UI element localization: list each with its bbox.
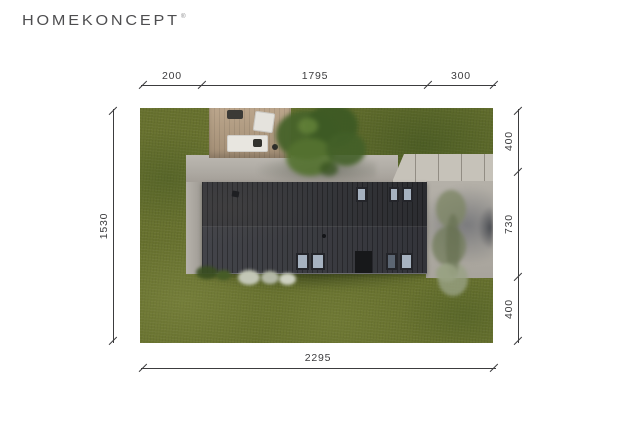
dimension-value: 400 (503, 289, 515, 329)
dimension-value: 400 (503, 121, 515, 161)
tree-canopy (268, 108, 372, 182)
dimension-line (518, 109, 519, 343)
dimension-value: 2295 (293, 352, 343, 364)
roof-window (386, 253, 397, 270)
slab-driveway-band (392, 154, 493, 182)
roof-window (356, 187, 367, 202)
canopy-blob (326, 132, 366, 166)
shrub (196, 266, 218, 279)
site-plan-page: HOMEKONCEPT ® (0, 0, 634, 448)
white-shrub (238, 270, 260, 285)
roof-window (402, 187, 413, 202)
sparse-tree (428, 186, 476, 304)
white-shrub (261, 271, 279, 284)
dimension-value: 1795 (290, 70, 340, 82)
dimension-value: 200 (152, 70, 192, 82)
roof-vent (322, 234, 326, 238)
roof-window (311, 253, 325, 270)
homekoncept-logo: HOMEKONCEPT ® (22, 12, 186, 29)
dimension-value: 1530 (98, 206, 110, 246)
logo-brand-text: HOMEKONCEPT (22, 12, 180, 29)
dimension-line (113, 109, 114, 343)
registered-trademark-icon: ® (181, 14, 186, 20)
roof-window (296, 253, 309, 270)
chimney (232, 190, 240, 197)
shrub (436, 264, 458, 282)
house-roof (202, 182, 427, 274)
concrete-apron-left (186, 182, 202, 274)
aerial-photo (140, 108, 493, 343)
canopy-blob (320, 162, 338, 176)
grill-object (227, 110, 243, 119)
roof-window (400, 253, 413, 270)
dimension-line (141, 368, 496, 369)
canopy-highlight (298, 118, 318, 134)
roof-window (389, 187, 399, 202)
dimension-value: 730 (503, 204, 515, 244)
dimension-value: 300 (441, 70, 481, 82)
entrance-recess (355, 251, 372, 273)
shrub (216, 270, 231, 280)
white-shrub (279, 273, 296, 285)
dimension-line (141, 85, 496, 86)
coffee-table (253, 139, 262, 147)
